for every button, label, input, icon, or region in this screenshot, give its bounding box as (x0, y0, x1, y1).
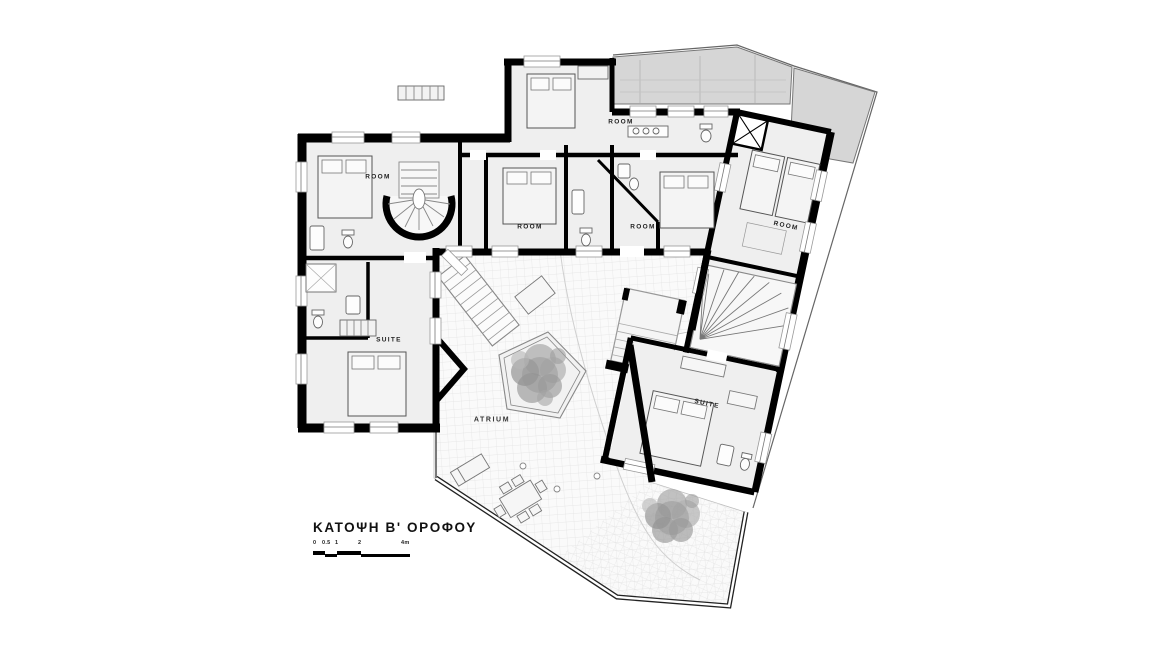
sink (618, 164, 630, 178)
scale-segment (337, 551, 361, 554)
scale-tick: 2 (358, 540, 361, 546)
scale-segment (325, 554, 337, 557)
scale-segment (361, 554, 410, 557)
scale-bar: 0 0.5 1 2 4m (313, 540, 423, 560)
room-label: ROOM (365, 174, 390, 181)
room-label: ROOM (608, 119, 633, 126)
toilet-icon (582, 234, 591, 246)
bed (527, 74, 575, 128)
scale-tick: 1 (335, 540, 338, 546)
floor-plan-page: ROOM ROOM ROOM ROOM ROOM SUITE SUITE ATR… (0, 0, 1150, 646)
toilet-icon (314, 316, 323, 328)
atrium-label: ATRIUM (474, 417, 510, 424)
plan-title: ΚΑΤΟΨΗ Β' ΟΡΟΦΟΥ (313, 520, 477, 535)
scale-tick: 0.5 (322, 540, 331, 546)
room-label: ROOM (517, 224, 542, 231)
bed (318, 156, 372, 218)
sink (310, 226, 324, 250)
sink (346, 296, 360, 314)
scale-tick: 4m (401, 540, 410, 546)
bed (503, 168, 556, 224)
bed (348, 352, 406, 416)
toilet-icon (344, 236, 353, 248)
bed (660, 172, 714, 228)
room-label: ROOM (630, 224, 655, 231)
scale-tick: 0 (313, 540, 316, 546)
sink (572, 190, 584, 214)
scale-segment (313, 551, 325, 554)
elevator-icon (732, 114, 768, 150)
floor-plan-drawing (0, 0, 1150, 646)
suite-label: SUITE (376, 337, 402, 344)
toilet-icon (701, 130, 711, 142)
toilet-icon (630, 178, 639, 190)
